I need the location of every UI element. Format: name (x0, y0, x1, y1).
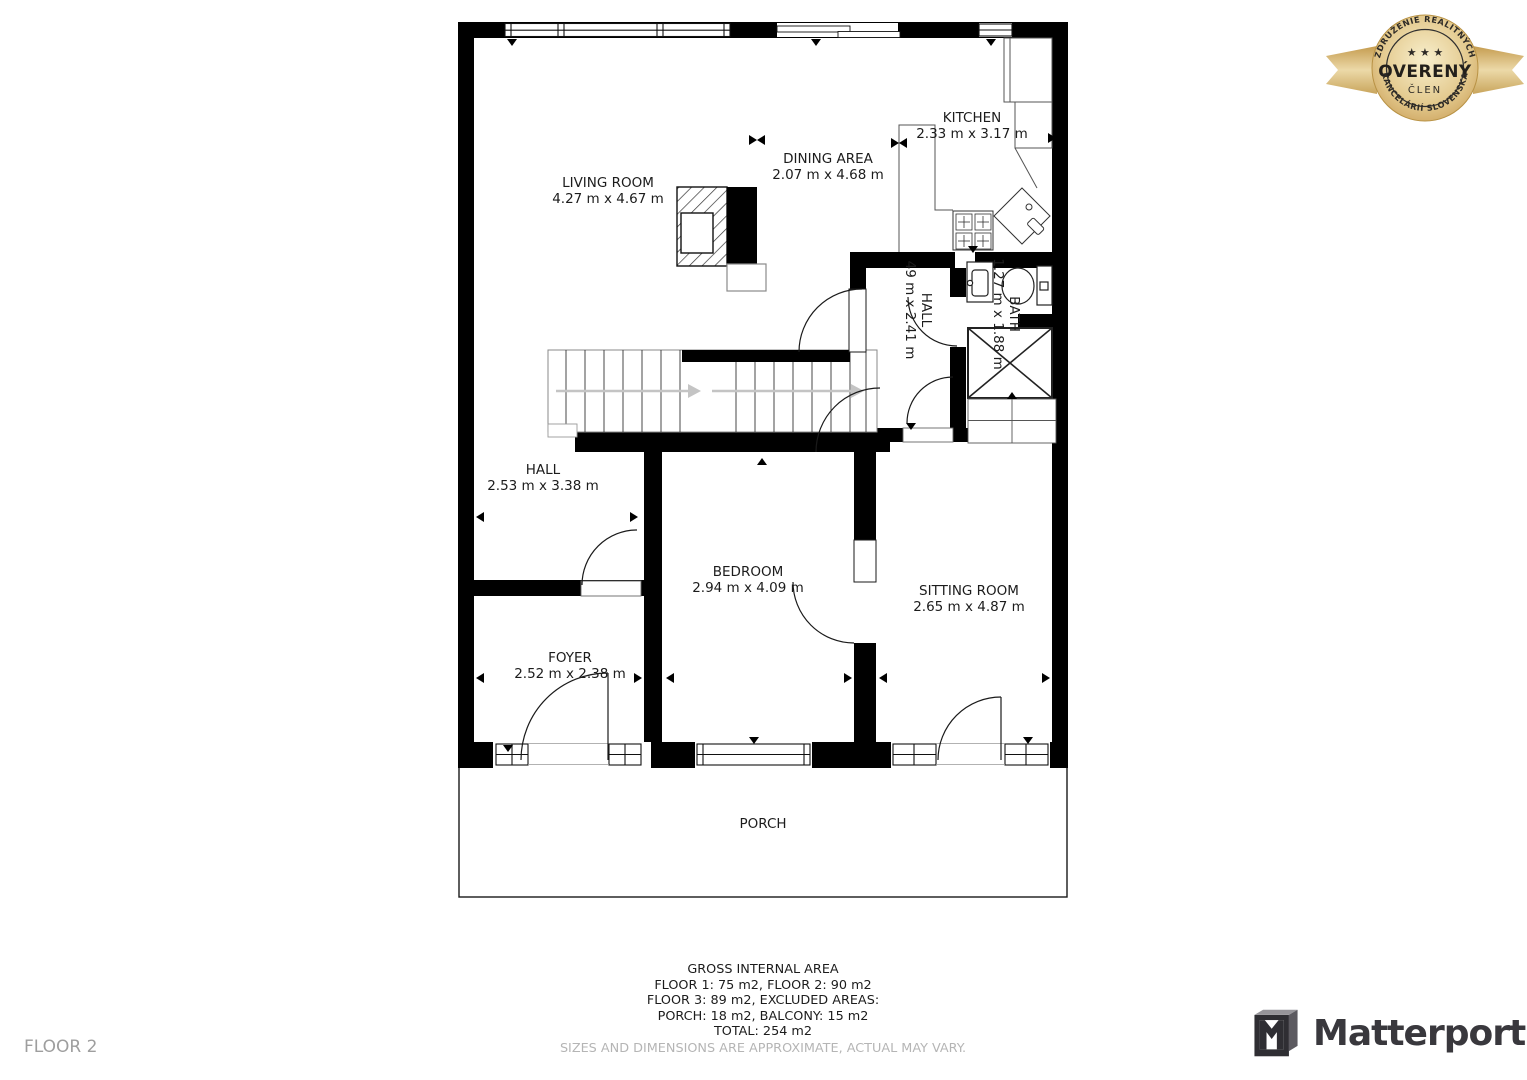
room-dims: 2.53 m x 3.38 m (487, 479, 599, 495)
room-label-living-room: LIVING ROOM 4.27 m x 4.67 m (552, 176, 664, 208)
room-dims: 2.33 m x 3.17 m (916, 127, 1028, 143)
room-name: KITCHEN (916, 111, 1028, 127)
room-dims: 2.94 m x 4.09 m (692, 581, 804, 597)
room-name: BATH (1005, 258, 1021, 370)
kitchen-fixtures (899, 38, 1052, 252)
disclaimer: SIZES AND DIMENSIONS ARE APPROXIMATE, AC… (455, 1041, 1071, 1057)
room-label-bedroom: BEDROOM 2.94 m x 4.09 m (692, 565, 804, 597)
closet-shelves (968, 399, 1056, 443)
room-label-kitchen: KITCHEN 2.33 m x 3.17 m (916, 111, 1028, 143)
room-label-bath: BATH 1.27 m x 1.88 m (989, 258, 1021, 370)
staircase (548, 350, 877, 437)
area-summary-line1: FLOOR 1: 75 m2, FLOOR 2: 90 m2 (455, 978, 1071, 994)
area-summary-title: GROSS INTERNAL AREA (455, 962, 1071, 978)
page: LIVING ROOM 4.27 m x 4.67 m DINING AREA … (0, 0, 1527, 1080)
floor-label: FLOOR 2 (24, 1037, 97, 1057)
matterport-logo: Matterport (1251, 1005, 1525, 1061)
room-dims: 49 m x 2.41 m (901, 261, 917, 360)
room-label-foyer: FOYER 2.52 m x 2.38 m (514, 651, 626, 683)
room-label-porch: PORCH (739, 817, 786, 833)
area-summary-line2: FLOOR 3: 89 m2, EXCLUDED AREAS: (455, 993, 1071, 1009)
fireplace (677, 187, 766, 291)
area-summary-line4: TOTAL: 254 m2 (455, 1024, 1071, 1040)
room-name: LIVING ROOM (552, 176, 664, 192)
badge-subtitle: ČLEN (1408, 83, 1442, 96)
room-label-dining-area: DINING AREA 2.07 m x 4.68 m (772, 152, 884, 184)
room-dims: 1.27 m x 1.88 m (989, 258, 1005, 370)
matterport-wordmark: Matterport (1313, 1013, 1525, 1054)
room-label-hall-upper: HALL 49 m x 2.41 m (901, 261, 933, 360)
room-name: BEDROOM (692, 565, 804, 581)
room-name: PORCH (739, 817, 786, 833)
room-name: HALL (487, 463, 599, 479)
verified-member-badge: ZDRUŽENIE REALITNÝCH ★ ★ ★ OVERENÝ ČLEN … (1322, 8, 1527, 130)
room-name: HALL (917, 261, 933, 360)
room-label-hall-lower: HALL 2.53 m x 3.38 m (487, 463, 599, 495)
matterport-logo-icon (1251, 1005, 1301, 1061)
room-name: DINING AREA (772, 152, 884, 168)
area-summary-line3: PORCH: 18 m2, BALCONY: 15 m2 (455, 1009, 1071, 1025)
badge-stars: ★ ★ ★ (1407, 46, 1444, 59)
room-dims: 4.27 m x 4.67 m (552, 192, 664, 208)
badge-title: OVERENÝ (1378, 60, 1472, 82)
room-name: FOYER (514, 651, 626, 667)
room-dims: 2.52 m x 2.38 m (514, 667, 626, 683)
room-name: SITTING ROOM (913, 584, 1025, 600)
room-dims: 2.07 m x 4.68 m (772, 168, 884, 184)
room-dims: 2.65 m x 4.87 m (913, 600, 1025, 616)
floor-plan-drawing (0, 0, 1527, 1080)
room-label-sitting-room: SITTING ROOM 2.65 m x 4.87 m (913, 584, 1025, 616)
area-summary: GROSS INTERNAL AREA FLOOR 1: 75 m2, FLOO… (455, 962, 1071, 1057)
